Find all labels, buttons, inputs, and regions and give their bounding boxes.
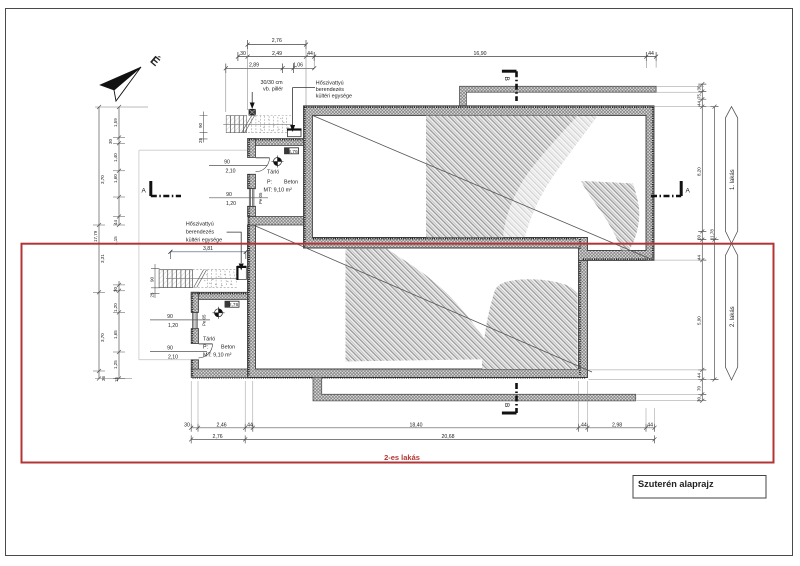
svg-text:1,20: 1,20	[113, 303, 118, 312]
svg-text:3,70: 3,70	[100, 175, 105, 184]
svg-text:44: 44	[581, 422, 587, 428]
svg-text:B: B	[503, 403, 510, 407]
svg-text:2,10: 2,10	[168, 355, 178, 361]
svg-text:A: A	[142, 188, 147, 195]
svg-text:kültéri egysége: kültéri egysége	[316, 94, 352, 100]
svg-text:3,70: 3,70	[100, 333, 105, 342]
svg-text:44: 44	[113, 219, 118, 225]
svg-text:MT: 9,10 m²: MT: 9,10 m²	[264, 188, 293, 194]
svg-text:MT: 9,10 m²: MT: 9,10 m²	[203, 353, 232, 359]
svg-text:30: 30	[697, 396, 702, 402]
svg-text:-2,76: -2,76	[227, 302, 238, 308]
svg-text:44: 44	[647, 422, 653, 428]
svg-text:44: 44	[648, 51, 654, 57]
svg-text:11,78: 11,78	[710, 229, 715, 240]
svg-text:5,90: 5,90	[697, 316, 702, 325]
svg-text:A: A	[686, 188, 691, 195]
svg-text:2,76: 2,76	[213, 434, 223, 440]
svg-text:70: 70	[697, 385, 702, 391]
svg-text:90: 90	[198, 122, 203, 128]
svg-text:2-es lakás: 2-es lakás	[384, 453, 420, 462]
svg-text:90: 90	[150, 276, 155, 282]
svg-text:Szuterén alaprajz: Szuterén alaprajz	[638, 479, 714, 489]
svg-text:Tárló: Tárló	[267, 170, 279, 176]
svg-text:90: 90	[226, 192, 232, 198]
svg-text:44: 44	[697, 254, 702, 260]
svg-text:36: 36	[101, 375, 106, 381]
svg-text:2,10: 2,10	[225, 168, 235, 174]
svg-text:P:: P:	[203, 345, 208, 351]
svg-text:18,40: 18,40	[410, 422, 423, 428]
svg-text:30: 30	[697, 85, 702, 91]
svg-text:17,79: 17,79	[93, 230, 98, 242]
svg-text:30: 30	[108, 138, 113, 144]
svg-text:50: 50	[697, 234, 702, 240]
svg-text:2,46: 2,46	[217, 422, 227, 428]
svg-text:B: B	[503, 77, 510, 81]
svg-text:2. lakás: 2. lakás	[730, 306, 736, 327]
svg-text:Tárló: Tárló	[203, 337, 215, 343]
svg-text:30: 30	[240, 51, 246, 57]
svg-text:berendezés: berendezés	[186, 230, 214, 236]
svg-text:vb. pillér: vb. pillér	[263, 87, 283, 93]
svg-text:30: 30	[184, 422, 190, 428]
svg-text:1,65: 1,65	[113, 330, 118, 339]
svg-text:1,60: 1,60	[113, 174, 118, 183]
svg-text:2,89: 2,89	[249, 63, 259, 69]
svg-text:2,76: 2,76	[272, 38, 282, 44]
svg-text:1,40: 1,40	[113, 153, 118, 162]
svg-text:25: 25	[150, 292, 155, 297]
svg-text:75: 75	[697, 93, 702, 99]
svg-text:kültéri egysége: kültéri egysége	[186, 238, 222, 244]
svg-text:44: 44	[307, 51, 313, 57]
svg-text:90: 90	[167, 346, 173, 352]
svg-text:15: 15	[114, 376, 119, 382]
svg-text:Beton: Beton	[221, 345, 235, 351]
svg-text:25: 25	[198, 138, 203, 143]
svg-text:1,20: 1,20	[168, 323, 178, 329]
svg-text:P:: P:	[267, 180, 272, 186]
svg-text:44: 44	[697, 100, 702, 106]
svg-text:2,49: 2,49	[272, 51, 282, 57]
svg-text:2,98: 2,98	[612, 422, 622, 428]
svg-text:Beton: Beton	[284, 180, 298, 186]
svg-text:16,90: 16,90	[474, 51, 487, 57]
svg-text:3,81: 3,81	[203, 246, 213, 252]
svg-text:1,20: 1,20	[226, 201, 236, 207]
svg-text:1,25: 1,25	[113, 360, 118, 369]
svg-text:90: 90	[224, 159, 230, 165]
svg-text:Hőszivattyú: Hőszivattyú	[316, 81, 344, 87]
svg-text:8,20: 8,20	[697, 167, 702, 176]
svg-text:-2,76: -2,76	[287, 149, 298, 155]
svg-text:1,59: 1,59	[113, 118, 118, 127]
svg-text:1. lakás: 1. lakás	[730, 169, 736, 190]
svg-text:30: 30	[113, 286, 118, 292]
svg-text:1,06: 1,06	[293, 63, 303, 69]
svg-text:Hőszivattyú: Hőszivattyú	[186, 222, 214, 228]
svg-text:44: 44	[247, 422, 253, 428]
svg-text:90: 90	[167, 314, 173, 320]
svg-text:30/30 cm: 30/30 cm	[261, 80, 284, 86]
svg-text:berendezés: berendezés	[316, 87, 344, 93]
svg-text:44: 44	[697, 372, 702, 378]
svg-text:3,31: 3,31	[100, 254, 105, 263]
svg-text:20,68: 20,68	[442, 434, 455, 440]
